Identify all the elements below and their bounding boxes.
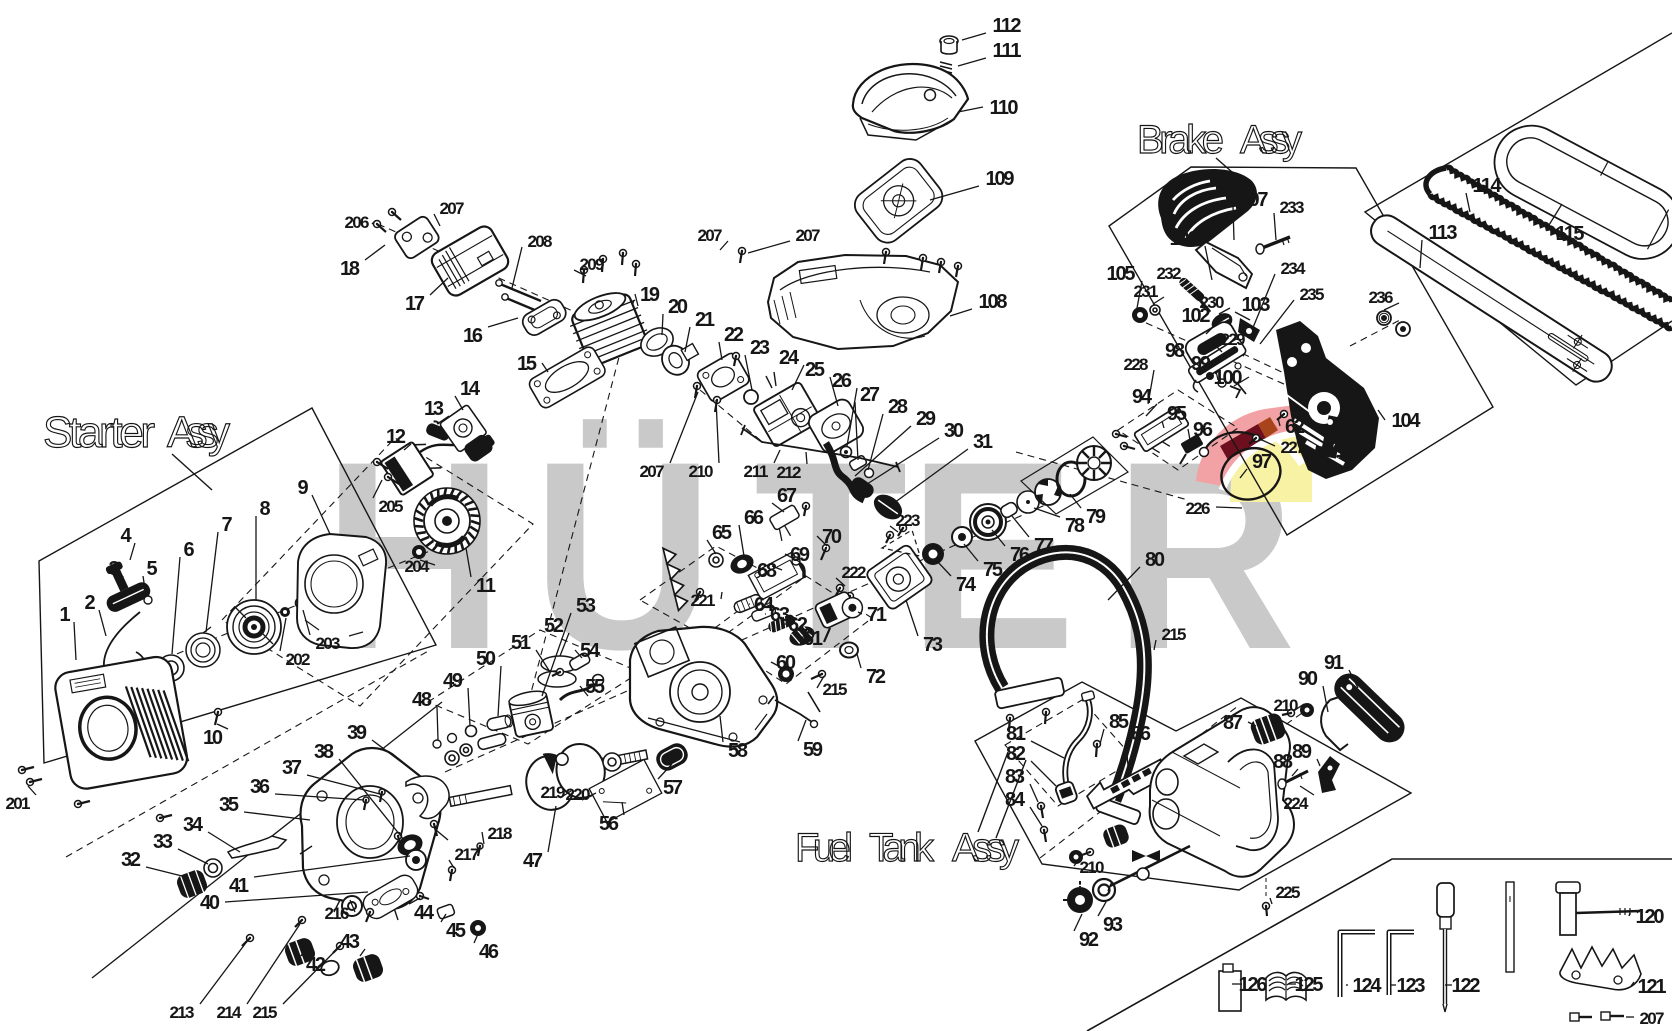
svg-text:45: 45 [446,920,466,942]
svg-text:60: 60 [776,652,796,674]
svg-text:64: 64 [754,594,775,616]
svg-text:89: 89 [1292,741,1312,763]
svg-text:69: 69 [790,544,810,566]
svg-text:35: 35 [219,794,239,816]
svg-text:103: 103 [1242,294,1271,316]
svg-text:232: 232 [1157,264,1182,283]
svg-text:235: 235 [1300,285,1325,304]
svg-text:216: 216 [325,904,350,923]
svg-text:12: 12 [386,426,406,448]
svg-text:123: 123 [1397,975,1426,997]
svg-text:8: 8 [259,498,270,520]
svg-text:58: 58 [728,740,748,762]
svg-text:208: 208 [528,232,553,251]
svg-text:67: 67 [777,485,797,507]
svg-text:112: 112 [993,15,1022,37]
svg-text:14: 14 [460,378,481,400]
svg-text:105: 105 [1107,263,1136,285]
svg-text:6: 6 [183,539,194,561]
svg-text:42: 42 [306,954,326,976]
svg-text:38: 38 [314,741,334,763]
svg-text:30: 30 [944,420,964,442]
svg-text:18: 18 [340,258,360,280]
svg-text:213: 213 [170,1003,195,1022]
svg-text:22: 22 [724,324,744,346]
svg-text:74: 74 [956,574,977,596]
svg-text:28: 28 [888,396,908,418]
svg-text:93: 93 [1103,914,1123,936]
svg-text:225: 225 [1276,883,1301,902]
svg-text:87: 87 [1223,712,1243,734]
svg-text:39: 39 [347,722,367,744]
svg-text:115: 115 [1556,223,1585,245]
svg-text:24: 24 [779,347,800,369]
svg-text:53: 53 [576,595,596,617]
svg-text:10: 10 [203,727,223,749]
svg-text:62: 62 [1285,416,1305,438]
svg-text:13: 13 [424,398,444,420]
svg-text:210: 210 [689,462,714,481]
svg-text:Assy: Assy [1240,118,1302,162]
svg-text:212: 212 [777,463,802,482]
svg-text:43: 43 [340,931,360,953]
svg-text:92: 92 [1079,929,1099,951]
svg-text:55: 55 [585,676,605,698]
svg-text:16: 16 [463,325,483,347]
svg-text:226: 226 [1186,499,1211,518]
svg-text:56: 56 [599,813,619,835]
svg-text:229: 229 [1221,330,1246,349]
svg-text:4: 4 [120,525,132,547]
svg-text:57: 57 [663,777,683,799]
svg-text:107: 107 [1240,189,1269,211]
svg-text:11: 11 [476,575,496,597]
svg-text:205: 205 [379,497,404,516]
svg-text:36: 36 [250,776,270,798]
svg-text:2: 2 [84,592,95,614]
svg-text:33: 33 [153,831,173,853]
svg-text:114: 114 [1473,175,1503,197]
svg-text:236: 236 [1369,288,1394,307]
svg-text:65: 65 [712,522,732,544]
svg-text:79: 79 [1086,506,1106,528]
svg-text:217: 217 [455,845,480,864]
svg-text:Assy: Assy [952,826,1019,870]
svg-text:47: 47 [523,850,543,872]
svg-text:70: 70 [822,526,842,548]
svg-text:90: 90 [1298,668,1318,690]
svg-text:23: 23 [750,337,770,359]
svg-text:218: 218 [488,824,513,843]
svg-text:124: 124 [1353,975,1383,997]
svg-text:210: 210 [1274,696,1299,715]
svg-text:221: 221 [691,591,716,610]
svg-text:101: 101 [1336,440,1365,462]
svg-text:82: 82 [1006,743,1026,765]
svg-text:207: 207 [1640,1009,1665,1028]
svg-text:204: 204 [405,557,431,576]
svg-text:31: 31 [973,431,993,453]
svg-text:40: 40 [200,892,220,914]
svg-text:234: 234 [1281,259,1307,278]
svg-text:Fuel: Fuel [795,826,853,870]
svg-text:201: 201 [6,794,31,813]
svg-text:19: 19 [640,284,660,306]
svg-text:91: 91 [1324,652,1344,674]
svg-text:66: 66 [744,507,764,529]
svg-text:26: 26 [832,370,852,392]
svg-text:98: 98 [1165,340,1185,362]
svg-text:32: 32 [121,849,141,871]
svg-text:210: 210 [1080,858,1105,877]
svg-text:113: 113 [1429,222,1458,244]
svg-text:215: 215 [1162,625,1187,644]
svg-text:120: 120 [1636,906,1665,928]
svg-text:223: 223 [896,511,921,530]
svg-text:125: 125 [1295,974,1324,996]
svg-text:9: 9 [297,477,308,499]
svg-text:80: 80 [1145,549,1165,571]
svg-text:126: 126 [1239,974,1268,996]
svg-text:207: 207 [640,462,665,481]
svg-text:20: 20 [668,296,688,318]
svg-text:59: 59 [803,739,823,761]
svg-text:78: 78 [1065,515,1085,537]
svg-text:95: 95 [1167,403,1187,425]
svg-text:34: 34 [183,814,204,836]
svg-text:Brake: Brake [1137,118,1224,162]
svg-text:81: 81 [1006,723,1026,745]
svg-text:54: 54 [580,640,601,662]
svg-text:106: 106 [1170,228,1199,250]
svg-text:21: 21 [695,309,715,331]
svg-text:1: 1 [59,604,70,626]
svg-text:44: 44 [414,902,435,924]
svg-text:211: 211 [744,462,769,481]
svg-text:3: 3 [108,558,119,580]
svg-text:104: 104 [1392,410,1422,432]
svg-text:202: 202 [286,650,311,669]
svg-text:88: 88 [1273,751,1293,773]
svg-text:84: 84 [1005,789,1026,811]
svg-text:76: 76 [1010,544,1030,566]
svg-text:97: 97 [1252,451,1272,473]
svg-text:27: 27 [860,384,880,406]
svg-text:122: 122 [1452,975,1481,997]
svg-text:29: 29 [916,408,936,430]
svg-text:100: 100 [1214,367,1243,389]
svg-text:51: 51 [511,632,531,654]
svg-text:228: 228 [1124,355,1149,374]
svg-text:15: 15 [517,353,537,375]
svg-text:72: 72 [866,666,886,688]
svg-text:85: 85 [1109,711,1129,733]
svg-text:73: 73 [923,634,943,656]
svg-text:206: 206 [345,213,370,232]
svg-text:94: 94 [1132,386,1153,408]
svg-text:222: 222 [842,563,867,582]
svg-text:99: 99 [1191,353,1211,375]
svg-text:203: 203 [316,634,341,653]
svg-text:62: 62 [788,614,808,636]
svg-text:231: 231 [1134,282,1159,301]
svg-text:207: 207 [796,226,821,245]
svg-text:Tank: Tank [869,826,935,870]
svg-text:233: 233 [1280,198,1305,217]
svg-text:Starter: Starter [43,408,155,457]
svg-text:49: 49 [443,670,463,692]
svg-text:37: 37 [282,757,302,779]
svg-text:96: 96 [1193,419,1213,441]
svg-text:46: 46 [479,941,499,963]
svg-text:25: 25 [805,359,825,381]
svg-text:220: 220 [566,785,591,804]
svg-text:110: 110 [990,97,1019,119]
svg-text:207: 207 [698,226,723,245]
svg-text:219: 219 [541,783,566,802]
svg-text:41: 41 [229,875,249,897]
svg-text:5: 5 [146,558,157,580]
svg-text:111: 111 [993,40,1022,62]
svg-text:75: 75 [983,559,1003,581]
svg-text:68: 68 [757,560,777,582]
svg-text:108: 108 [979,291,1008,313]
svg-text:109: 109 [986,168,1015,190]
svg-text:215: 215 [823,680,848,699]
svg-text:121: 121 [1638,976,1667,998]
svg-text:7: 7 [221,514,232,536]
svg-text:214: 214 [217,1003,243,1022]
svg-text:102: 102 [1182,305,1211,327]
svg-text:52: 52 [544,615,564,637]
svg-text:209: 209 [580,255,605,274]
svg-text:50: 50 [476,648,496,670]
svg-text:86: 86 [1131,723,1151,745]
svg-text:83: 83 [1005,766,1025,788]
svg-text:77: 77 [1034,535,1054,557]
svg-text:224: 224 [1284,794,1310,813]
svg-text:215: 215 [253,1003,278,1022]
svg-text:48: 48 [412,689,432,711]
svg-text:17: 17 [405,293,425,315]
svg-text:227: 227 [1281,438,1306,457]
svg-text:71: 71 [867,604,887,626]
svg-text:Assy: Assy [167,408,230,457]
svg-text:207: 207 [440,199,465,218]
